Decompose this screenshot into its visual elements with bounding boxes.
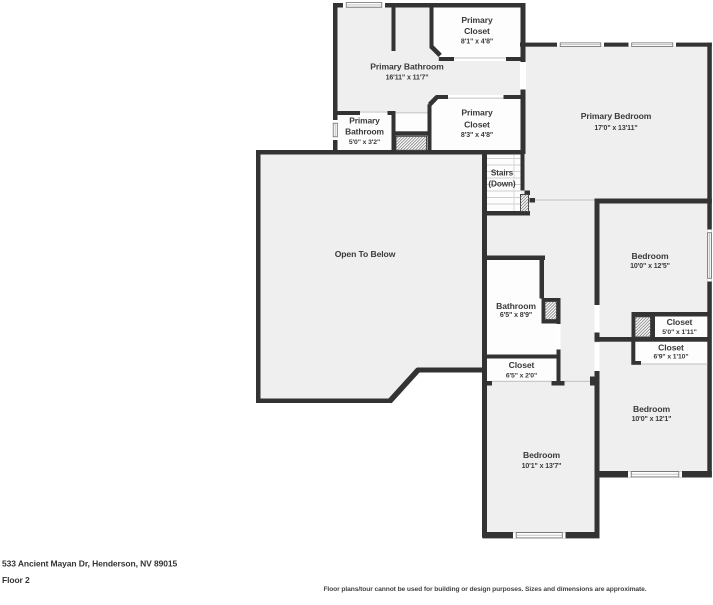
svg-text:10'0" x 12'5": 10'0" x 12'5" <box>630 263 670 270</box>
svg-text:Closet: Closet <box>658 343 684 353</box>
svg-text:Bedroom: Bedroom <box>631 251 668 261</box>
svg-text:Primary Bathroom: Primary Bathroom <box>370 62 444 72</box>
svg-text:Floor 2: Floor 2 <box>2 575 30 585</box>
svg-text:Primary: Primary <box>349 116 380 126</box>
svg-text:Closet: Closet <box>464 119 490 129</box>
svg-text:Bedroom: Bedroom <box>523 450 560 460</box>
svg-text:6'9" x 1'10": 6'9" x 1'10" <box>654 353 689 360</box>
svg-text:8'3" x 4'8": 8'3" x 4'8" <box>461 132 493 139</box>
svg-text:8'1" x 4'8": 8'1" x 4'8" <box>461 39 493 46</box>
svg-text:17'0" x 13'11": 17'0" x 13'11" <box>594 125 637 132</box>
svg-text:6'5" x 2'0": 6'5" x 2'0" <box>506 373 537 380</box>
svg-text:(Down): (Down) <box>488 179 516 188</box>
svg-text:Closet: Closet <box>667 317 693 327</box>
svg-text:Stairs: Stairs <box>491 169 514 178</box>
svg-text:Bathroom: Bathroom <box>345 127 384 137</box>
svg-text:Closet: Closet <box>509 360 535 370</box>
svg-text:5'0" x 3'2": 5'0" x 3'2" <box>349 139 380 146</box>
svg-text:Primary: Primary <box>461 15 493 25</box>
svg-text:Floor plans/tour cannot be use: Floor plans/tour cannot be used for buil… <box>323 586 646 593</box>
svg-text:10'1" x 13'7": 10'1" x 13'7" <box>522 463 562 470</box>
svg-text:10'0" x 12'1": 10'0" x 12'1" <box>632 416 672 423</box>
svg-text:16'11" x 11'7": 16'11" x 11'7" <box>386 75 429 82</box>
svg-text:Open To Below: Open To Below <box>335 249 396 259</box>
svg-text:5'0" x 1'11": 5'0" x 1'11" <box>662 329 697 336</box>
svg-text:6'5" x 8'9": 6'5" x 8'9" <box>500 312 532 319</box>
svg-text:533 Ancient Mayan Dr, Henderso: 533 Ancient Mayan Dr, Henderson, NV 8901… <box>2 559 177 569</box>
svg-text:Bedroom: Bedroom <box>633 404 670 414</box>
svg-text:Primary Bedroom: Primary Bedroom <box>581 111 652 121</box>
svg-text:Bathroom: Bathroom <box>496 301 536 311</box>
svg-text:Closet: Closet <box>464 26 490 36</box>
svg-text:Primary: Primary <box>461 108 493 118</box>
